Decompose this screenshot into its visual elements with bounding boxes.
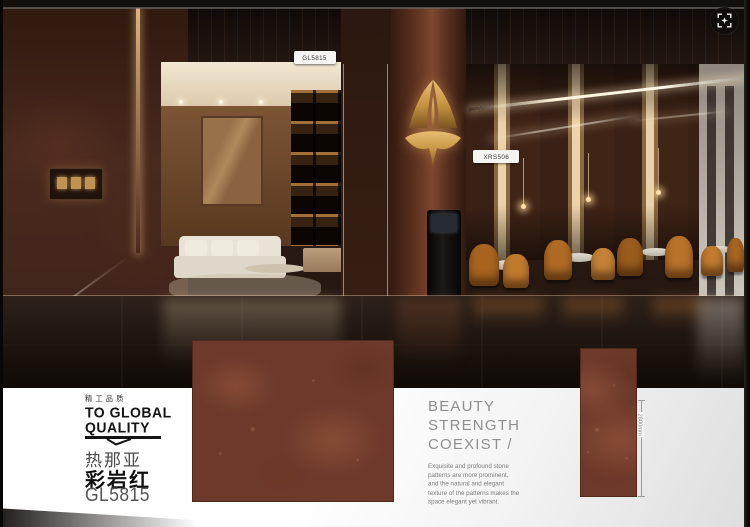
slogan-block: BEAUTY STRENGTH COEXIST / (428, 397, 520, 454)
tagline-tick-icon (106, 438, 132, 446)
lounge-chair (469, 244, 499, 286)
gold-emblem-icon (401, 74, 465, 178)
dimension-annotation: 2800mm (639, 400, 655, 497)
downlight (219, 100, 223, 104)
dimension-tick (638, 496, 645, 497)
interior-rendering (3, 8, 744, 388)
kiosk-screen (431, 214, 457, 232)
wall-light-seam (136, 8, 140, 253)
wall-mirror (201, 116, 263, 206)
sofa-cushion (237, 240, 259, 256)
page-top-edge (0, 7, 750, 9)
lounge-chair (503, 254, 529, 288)
slogan-line: STRENGTH (428, 416, 520, 435)
hotspot-tag-label: GL5815 (303, 54, 328, 61)
signage-glyph (71, 177, 81, 189)
scan-expand-icon (717, 13, 732, 28)
hotspot-tag-label: XRS506 (483, 153, 509, 160)
backlit-shelving (291, 90, 341, 246)
coffee-table (245, 264, 305, 273)
pendant-light (658, 148, 659, 190)
floor-junction-glow (3, 295, 744, 296)
dimension-label: 2800mm (637, 412, 643, 437)
lounge-chair (665, 236, 693, 278)
lounge-chair (617, 238, 643, 276)
signage-glyph (85, 177, 95, 189)
hotspot-tag-xrs506[interactable]: XRS506 (473, 150, 519, 163)
lounge-chair (701, 246, 723, 276)
lounge-chair (727, 238, 744, 272)
pendant-bulb (656, 190, 661, 195)
description-paragraph: Exquisite and profound stone patterns ar… (428, 462, 520, 506)
tile-swatch-side (580, 348, 637, 497)
brochure-viewer: GL5815 XRS506 精工品质 TO GLOBAL QUALITY 热那亚… (0, 0, 750, 527)
product-code: GL5815 (85, 485, 150, 507)
lounge-chair (544, 240, 572, 280)
slogan-line: BEAUTY (428, 397, 520, 416)
floor-reflection (697, 298, 744, 388)
downlight (259, 100, 263, 104)
hotspot-tag-gl5815[interactable]: GL5815 (294, 51, 336, 64)
sofa-cushion (211, 240, 233, 256)
wall-signage (49, 168, 103, 200)
floor-reflection (397, 298, 461, 368)
floor-reflection (473, 298, 543, 324)
slogan-line: COEXIST / (428, 435, 520, 454)
expand-button[interactable] (711, 7, 738, 34)
downlight (179, 100, 183, 104)
glass-edge (387, 64, 388, 314)
tile-swatch-main (192, 340, 394, 502)
sofa-cushion (185, 240, 207, 256)
pendant-light (523, 158, 524, 204)
tagline-chinese: 精工品质 (85, 393, 127, 403)
pendant-bulb (521, 204, 526, 209)
tagline-line2: QUALITY (85, 419, 150, 436)
dimension-tick (638, 400, 645, 401)
pendant-light (588, 153, 589, 197)
glass-edge (343, 64, 344, 314)
floor-reflection (563, 298, 623, 324)
pendant-bulb (586, 197, 591, 202)
signage-glyph (57, 177, 67, 189)
viewer-right-border (744, 0, 750, 527)
floor-reflection (653, 298, 703, 324)
viewer-left-border (0, 0, 3, 527)
lounge-chair (591, 248, 615, 280)
